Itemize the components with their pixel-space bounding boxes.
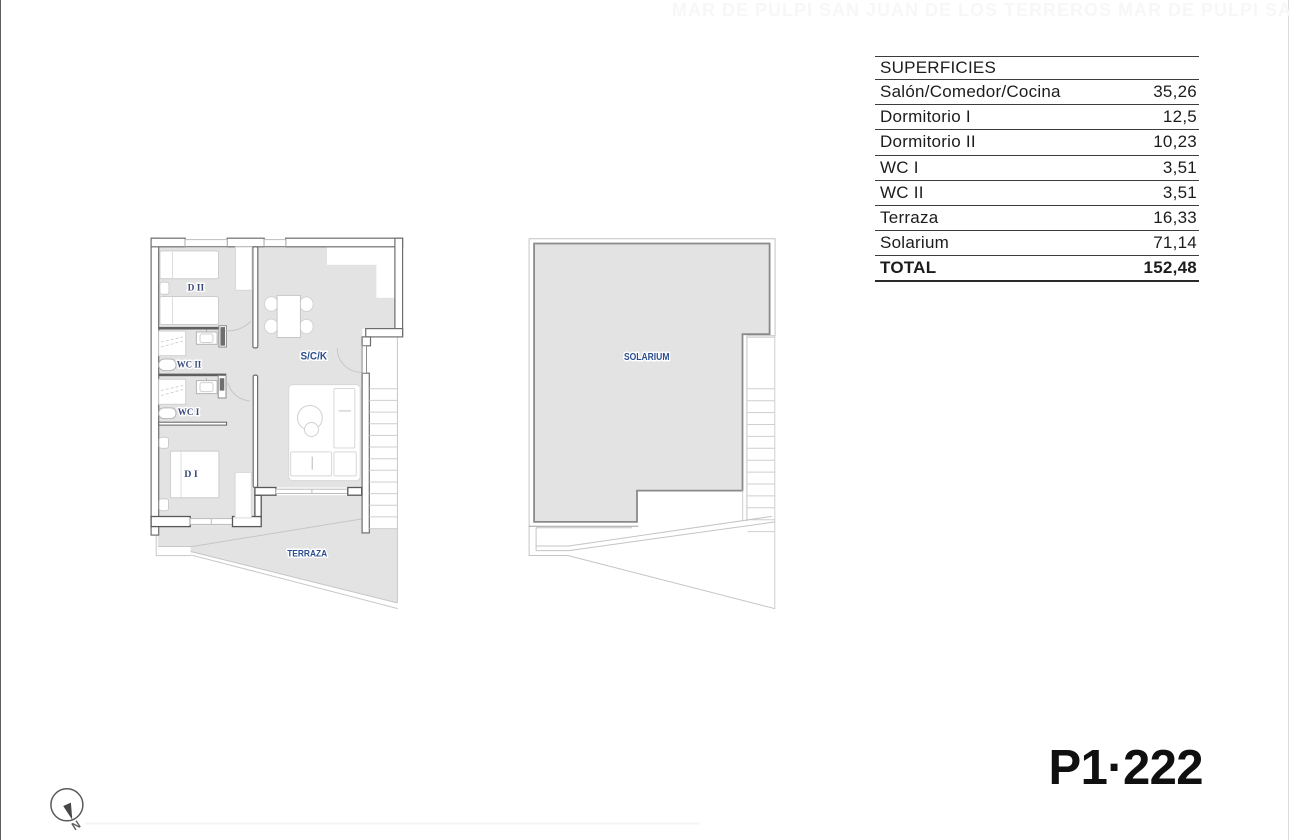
svg-text:MAR DE PULPI SAN JUAN DE LOS T: MAR DE PULPI SAN JUAN DE LOS TERREROS MA…: [672, 0, 1290, 20]
svg-text:SOLARIUM: SOLARIUM: [624, 351, 670, 363]
svg-text:D I: D I: [184, 470, 198, 480]
svg-text:N: N: [70, 819, 83, 833]
svg-text:TERRAZA: TERRAZA: [287, 549, 327, 559]
svg-text:WC II: WC II: [177, 360, 202, 371]
svg-text:D II: D II: [188, 284, 205, 294]
svg-text:S/C/K: S/C/K: [301, 350, 328, 362]
svg-text:WC I: WC I: [178, 407, 200, 418]
